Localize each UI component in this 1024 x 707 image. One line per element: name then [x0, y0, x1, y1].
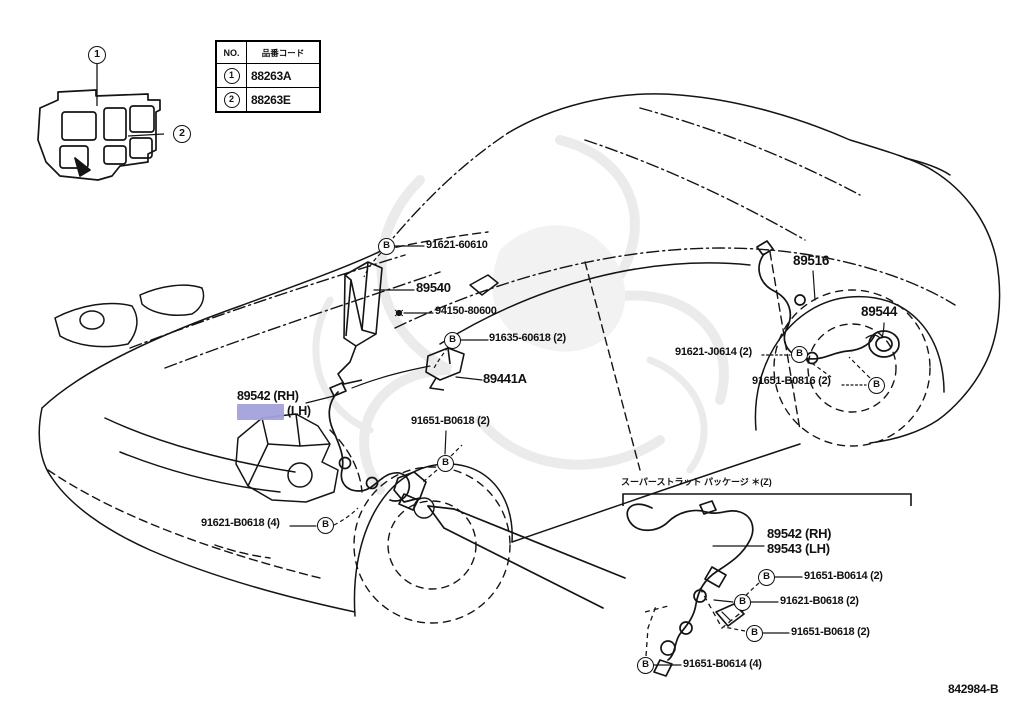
bolt-marker: B — [868, 377, 885, 394]
detail-label-89543-lh[interactable]: 89543 (LH) — [767, 542, 830, 555]
bolt-marker: B — [317, 517, 334, 534]
part-label-91621-b0618-front[interactable]: 91621-B0618 (4) — [201, 518, 280, 529]
detail-label-91651-b0614-4[interactable]: 91651-B0614 (4) — [683, 659, 762, 670]
part-label-91621-60610[interactable]: 91621-60610 — [426, 240, 488, 251]
bolt-marker: B — [637, 657, 654, 674]
part-label-94150-80600[interactable]: 94150-80600 — [435, 306, 497, 317]
relay-box-drawing — [38, 64, 164, 180]
part-label-89516[interactable]: 89516 — [793, 254, 829, 268]
row-number-cell: 2 — [217, 88, 247, 111]
bolt-marker: B — [791, 346, 808, 363]
table-header-no: NO. — [217, 42, 247, 63]
screw-drawing — [395, 310, 403, 316]
detail-section-bracket — [623, 494, 911, 506]
row-number-cell: 1 — [217, 64, 247, 87]
bolt-marker: B — [444, 332, 461, 349]
part-label-89540[interactable]: 89540 — [416, 281, 451, 294]
callout-circle-2: 2 — [173, 125, 191, 143]
detail-section-header: スーパーストラット パッケージ ＊(Z) — [621, 478, 772, 487]
bolt-marker: B — [734, 594, 751, 611]
bolt-marker: B — [758, 569, 775, 586]
table-row[interactable]: 1 88263A — [217, 63, 319, 87]
detail-harness-drawing — [627, 501, 753, 676]
part-code-table: NO. 品番コード 1 88263A 2 88263E — [215, 40, 321, 113]
table-row[interactable]: 2 88263E — [217, 87, 319, 111]
part-label-89544[interactable]: 89544 — [861, 305, 897, 319]
detail-label-91651-b0618-2[interactable]: 91651-B0618 (2) — [791, 627, 870, 638]
bolt-marker: B — [378, 238, 395, 255]
part-label-89543-lh-suffix[interactable]: (LH) — [287, 405, 311, 418]
part-label-89542-rh[interactable]: 89542 (RH) — [237, 390, 299, 403]
detail-label-91651-b0614-2[interactable]: 91651-B0614 (2) — [804, 571, 883, 582]
part-code-cell[interactable]: 88263E — [247, 93, 319, 107]
car-outline — [39, 94, 999, 616]
part-code-cell[interactable]: 88263A — [247, 69, 319, 83]
abs-ecu-drawing — [338, 262, 382, 384]
table-header-row: NO. 品番コード — [217, 42, 319, 63]
part-label-91635-60618[interactable]: 91635-60618 (2) — [489, 333, 566, 344]
parts-diagram-canvas: NO. 品番コード 1 88263A 2 88263E 1 2 B B B B … — [0, 0, 1024, 707]
bolt-marker: B — [437, 455, 454, 472]
callout-circle-1: 1 — [88, 46, 106, 64]
part-label-89441a[interactable]: 89441A — [483, 372, 527, 385]
part-label-91651-b0816[interactable]: 91651-B0816 (2) — [752, 376, 831, 387]
circled-number-1: 1 — [224, 68, 240, 84]
part-label-91651-b0618-front[interactable]: 91651-B0618 (2) — [411, 416, 490, 427]
table-header-code: 品番コード — [247, 47, 319, 59]
circled-number-2: 2 — [224, 92, 240, 108]
part-label-91621-j0614[interactable]: 91621-J0614 (2) — [675, 347, 752, 358]
selection-highlight-box — [237, 404, 284, 420]
diagram-line-art — [0, 0, 1024, 707]
detail-label-91621-b0618-2[interactable]: 91621-B0618 (2) — [780, 596, 859, 607]
zoom-arrow — [428, 506, 625, 608]
detail-label-89542-rh[interactable]: 89542 (RH) — [767, 527, 831, 540]
diagram-code: 842984-B — [948, 683, 998, 695]
bolt-marker: B — [746, 625, 763, 642]
